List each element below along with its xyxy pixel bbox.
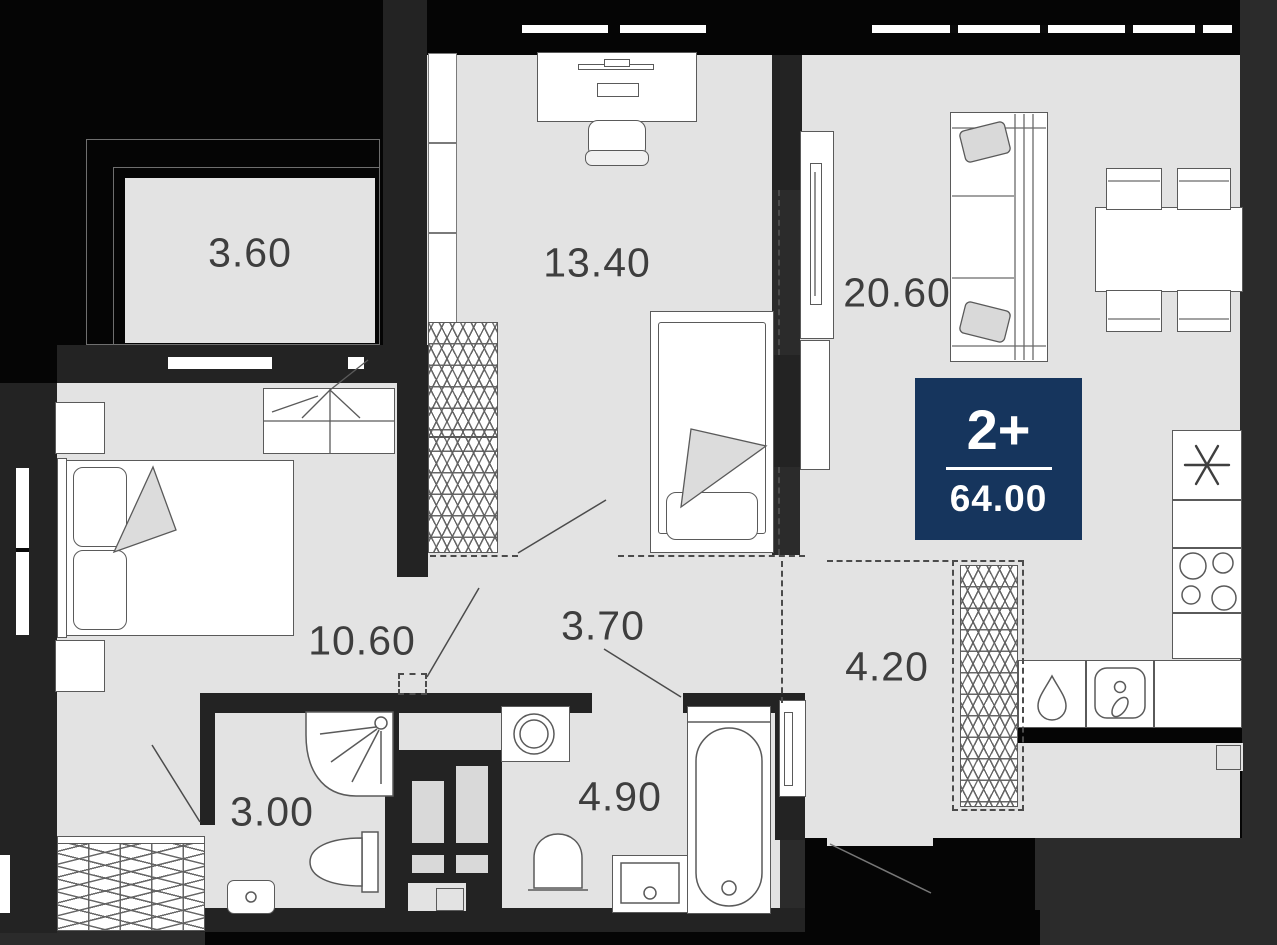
vent-shaft-hatch-square	[436, 888, 464, 911]
tv-screen	[810, 163, 822, 305]
window-bedroom-left	[428, 53, 457, 325]
wall-left-exterior	[0, 383, 57, 933]
opening-bedroom-door	[430, 555, 518, 557]
dining-chair	[1177, 290, 1231, 332]
kitchen-sink-cabinet	[1086, 660, 1154, 728]
nightstand	[55, 640, 105, 692]
desk-chair-back	[585, 150, 649, 166]
room-label-bathroom: 4.90	[578, 774, 662, 821]
master-wardrobe	[263, 388, 395, 454]
kitchen-plinth	[1018, 728, 1242, 743]
window-mullion	[428, 142, 457, 144]
kitchen-cabinet	[1172, 613, 1242, 659]
bed-pillow	[73, 467, 127, 547]
window-bedroom-top-1	[522, 25, 608, 33]
exterior-mass-entrance	[805, 838, 1035, 945]
wall-bedroom-living-upper	[772, 55, 802, 190]
divider-hall-corridor	[781, 561, 783, 703]
kitchen-cabinet	[1154, 660, 1242, 728]
sofa	[950, 112, 1048, 362]
room-label-shower-room: 3.00	[230, 789, 314, 836]
window-mullion	[428, 232, 457, 234]
opening-living-wall-upper	[778, 190, 780, 355]
wall-bedroom-living-lower	[772, 355, 802, 467]
room-label-balcony: 3.60	[208, 230, 292, 277]
unit-badge: 2+ 64.00	[915, 378, 1082, 540]
window-mullion	[1040, 25, 1048, 33]
washing-machine	[501, 706, 570, 762]
kitchen-cabinet-drop	[1018, 660, 1086, 728]
window-living-top	[872, 25, 1232, 33]
window-master-top-2	[348, 357, 364, 369]
shower-sink	[227, 880, 275, 914]
bathroom-sink-counter	[612, 855, 688, 913]
opening-corridor	[827, 560, 958, 562]
room-label-corridor: 4.20	[845, 644, 929, 691]
floor-entry-threshold	[827, 838, 933, 846]
room-label-living-kitchen: 20.60	[843, 270, 951, 317]
fridge	[1172, 430, 1242, 500]
lower-wardrobe	[57, 843, 205, 931]
desk-monitor-stand	[604, 59, 630, 67]
kitchen-floor-strip	[1020, 743, 1096, 771]
vent-shaft-cell	[456, 766, 488, 843]
hall-wardrobe	[960, 565, 1018, 807]
kitchen-cabinet	[1172, 500, 1242, 548]
stove	[1172, 548, 1242, 613]
room-label-master-bedroom: 10.60	[308, 618, 416, 665]
badge-divider	[946, 467, 1052, 470]
bed-pillow	[73, 550, 127, 630]
opening-hall	[618, 555, 805, 557]
room-label-hall: 3.70	[561, 603, 645, 650]
window-master-top-1	[168, 357, 272, 369]
window-mullion	[950, 25, 958, 33]
vent-shaft-cell	[412, 781, 444, 843]
dining-table	[1095, 207, 1243, 292]
dining-chair	[1106, 168, 1162, 210]
single-bed-cushion	[666, 492, 758, 540]
unit-rooms-count: 2+	[967, 402, 1031, 458]
tv-unit-lower	[800, 340, 830, 470]
room-label-bedroom: 13.40	[543, 240, 651, 287]
floor-plan-canvas: 3.60 13.40 20.60 10.60 3.70 4.20 3.00 4.…	[0, 0, 1277, 945]
window-mullion	[1125, 25, 1133, 33]
window-lower-left	[0, 855, 10, 913]
vent-shaft-cell	[456, 855, 488, 873]
wall-balcony-bedroom	[383, 0, 427, 350]
unit-total-area: 64.00	[950, 480, 1048, 517]
dining-chair	[1177, 168, 1231, 210]
window-mullion	[16, 548, 29, 552]
opening-master-door	[398, 673, 427, 695]
window-mullion	[1195, 25, 1203, 33]
kitchen-hatch-square	[1216, 745, 1241, 770]
towel-panel-inner	[784, 712, 793, 786]
bathtub-frame	[687, 706, 771, 914]
wall-master-bedroom-right	[397, 345, 428, 577]
dining-chair	[1106, 290, 1162, 332]
nightstand	[55, 402, 105, 454]
window-bedroom-top-2	[620, 25, 706, 33]
vent-shaft-cell	[412, 855, 444, 873]
wall-shower-room-left	[200, 695, 215, 825]
wardrobe-divider	[428, 436, 498, 438]
desk-keyboard	[597, 83, 639, 97]
opening-living-wall-lower	[778, 467, 780, 555]
